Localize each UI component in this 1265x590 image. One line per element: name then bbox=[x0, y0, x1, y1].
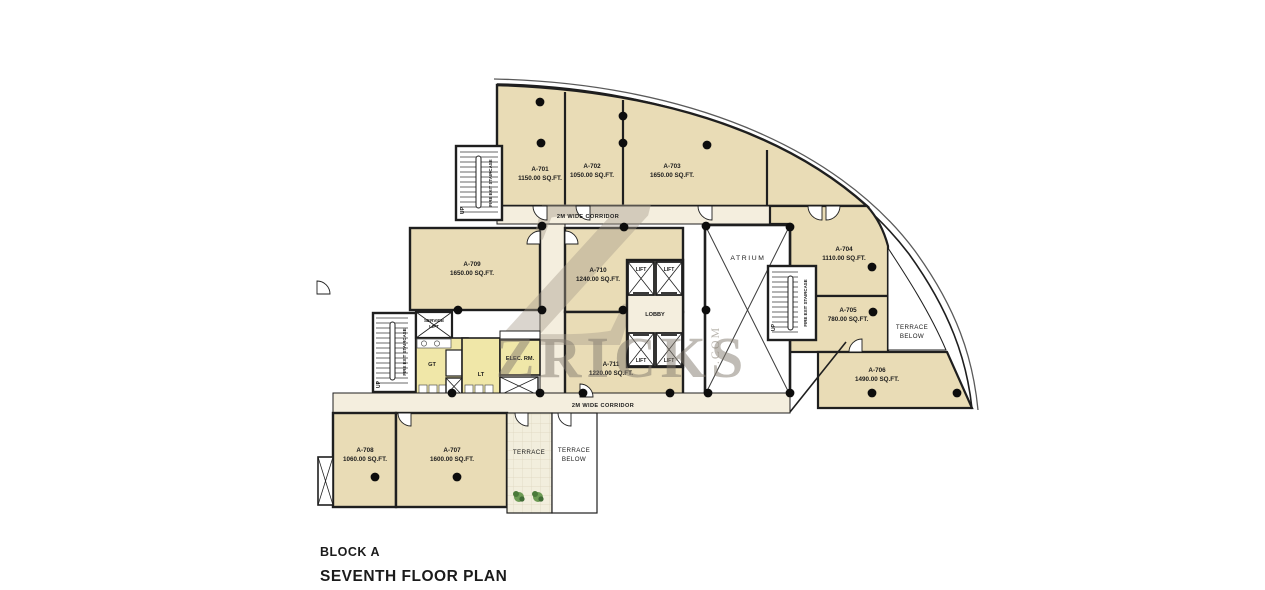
gt-label: GT bbox=[428, 362, 436, 368]
fire-exit-label: FIRE EXIT STAIRCASE bbox=[803, 279, 808, 326]
svg-text:LIFT: LIFT bbox=[429, 324, 439, 329]
lobby-label: LOBBY bbox=[645, 312, 665, 318]
floor-plan-title: SEVENTH FLOOR PLAN bbox=[320, 568, 507, 585]
svg-text:780.00 SQ.FT.: 780.00 SQ.FT. bbox=[828, 316, 869, 323]
svg-text:BELOW: BELOW bbox=[562, 456, 586, 463]
svg-text:1490.00 SQ.FT.: 1490.00 SQ.FT. bbox=[855, 376, 899, 383]
lift-top-left: LIFT bbox=[628, 262, 654, 295]
room-a709-label: A-709 bbox=[463, 261, 481, 268]
ladies-toilet: LT bbox=[462, 338, 500, 395]
svg-text:1150.00 SQ.FT.: 1150.00 SQ.FT. bbox=[518, 175, 562, 182]
room-a706-label: A-706 bbox=[868, 367, 886, 374]
stair-top-left: UP FIRE EXIT STAIRCASE bbox=[456, 146, 502, 220]
up-label: UP bbox=[460, 206, 466, 214]
room-a710-label: A-710 bbox=[589, 267, 607, 274]
duct-closet bbox=[446, 350, 462, 376]
svg-text:1110.00 SQ.FT.: 1110.00 SQ.FT. bbox=[822, 255, 866, 262]
block-title: BLOCK A bbox=[320, 545, 380, 559]
room-a702-label: A-702 bbox=[583, 163, 601, 170]
corridor-bottom-label: 2M WIDE CORRIDOR bbox=[572, 403, 634, 409]
corridor-top-label: 2M WIDE CORRIDOR bbox=[557, 214, 619, 220]
fire-exit-label: FIRE EXIT STAIRCASE bbox=[402, 328, 407, 375]
stair-atrium: UP FIRE EXIT STAIRCASE bbox=[768, 266, 816, 340]
svg-text:1650.00 SQ.FT.: 1650.00 SQ.FT. bbox=[650, 172, 694, 179]
svg-text:TERRACE: TERRACE bbox=[558, 447, 590, 454]
svg-text:1060.00 SQ.FT.: 1060.00 SQ.FT. bbox=[343, 456, 387, 463]
plan-title: BLOCK A SEVENTH FLOOR PLAN bbox=[320, 545, 507, 585]
room-a701-label: A-701 bbox=[531, 166, 549, 173]
svg-text:BELOW: BELOW bbox=[900, 333, 924, 340]
lift-top-right: LIFT bbox=[656, 262, 682, 295]
svg-text:1050.00 SQ.FT.: 1050.00 SQ.FT. bbox=[570, 172, 614, 179]
room-a703-label: A-703 bbox=[663, 163, 681, 170]
room-a708-label: A-708 bbox=[356, 447, 374, 454]
service-lift: SERVICE LIFT bbox=[416, 312, 452, 338]
fire-exit-label: FIRE EXIT STAIRCASE bbox=[488, 159, 493, 206]
stair-service: UP FIRE EXIT STAIRCASE bbox=[373, 313, 416, 392]
svg-text:SERVICE: SERVICE bbox=[424, 318, 444, 323]
lt-label: LT bbox=[478, 372, 485, 378]
svg-text:LIFT: LIFT bbox=[664, 267, 675, 273]
terrace-below-bottom: TERRACE BELOW bbox=[552, 413, 597, 513]
atrium-label: ATRIUM bbox=[730, 255, 765, 262]
svg-text:1240.00 SQ.FT.: 1240.00 SQ.FT. bbox=[576, 276, 620, 283]
room-a705-label: A-705 bbox=[839, 307, 857, 314]
corridor-bottom bbox=[333, 393, 790, 413]
watermark-suffix: .COM bbox=[708, 326, 722, 364]
terrace-label: TERRACE bbox=[513, 449, 545, 456]
floor-plan-page: Z LIFT LIFT LIFT bbox=[0, 0, 1265, 590]
up-label: UP bbox=[771, 323, 777, 331]
bottom-wing: TERRACE TERRACE BELOW bbox=[318, 413, 597, 513]
svg-text:LIFT: LIFT bbox=[636, 267, 647, 273]
room-a707-label: A-707 bbox=[443, 447, 461, 454]
room-a704-label: A-704 bbox=[835, 246, 853, 253]
svg-text:1600.00 SQ.FT.: 1600.00 SQ.FT. bbox=[430, 456, 474, 463]
terrace: TERRACE bbox=[507, 413, 552, 513]
terrace-below-right-label: TERRACE bbox=[896, 324, 928, 331]
svg-text:1650.00 SQ.FT.: 1650.00 SQ.FT. bbox=[450, 270, 494, 277]
up-label: UP bbox=[376, 380, 382, 388]
watermark: ZRICKS .COM bbox=[496, 325, 748, 390]
floor-plan-canvas: Z LIFT LIFT LIFT bbox=[0, 0, 1265, 590]
side-shaft-left bbox=[318, 457, 333, 505]
